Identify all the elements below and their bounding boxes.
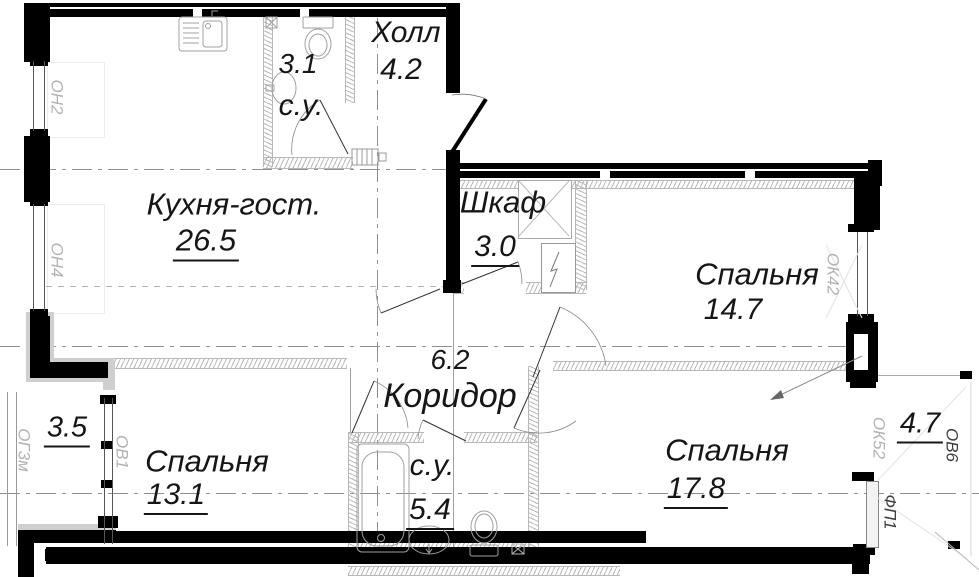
window-mark-on2: ОН2 bbox=[49, 80, 66, 115]
window-mark-ok42: ОК42 bbox=[825, 253, 842, 295]
area-label-bedroom-right: 14.7 bbox=[704, 295, 762, 325]
bathroom-top-door-leaf bbox=[320, 100, 348, 154]
window-mark-og3m: ОГ3м bbox=[16, 428, 33, 472]
entrance-door-leaf bbox=[452, 99, 486, 152]
room-label-corridor: Коридор bbox=[383, 379, 516, 413]
bedroom-left-door-leaf bbox=[352, 381, 374, 433]
bedroom-bottom-right-door-arc bbox=[514, 421, 576, 433]
room-label-hall: Холл bbox=[371, 18, 440, 48]
bedroom-right-door-arc bbox=[560, 307, 606, 366]
room-label-bathroom-bottom: с.у. bbox=[410, 451, 455, 481]
area-label-kitchen: 26.5 bbox=[173, 225, 239, 256]
kitchen-door-arc bbox=[376, 289, 381, 313]
room-label-bedroom-right: Спальня bbox=[695, 259, 819, 290]
bathtub-icon bbox=[357, 444, 409, 552]
room-label-kitchen: Кухня-гост. bbox=[147, 189, 322, 220]
washbasin-bottom-icon bbox=[409, 526, 449, 554]
window-mark-ok52: ОК52 bbox=[871, 417, 888, 459]
room-label-bedroom-left: Спальня bbox=[145, 446, 269, 477]
kitchen-door-leaf bbox=[381, 289, 440, 313]
entrance-door-arc bbox=[452, 94, 486, 99]
floor-plan: Холл 4.2 3.1 с.у. Кухня-гост. 26.5 Шкаф … bbox=[0, 0, 979, 577]
area-label-bedroom-bottom-right: 17.8 bbox=[664, 474, 728, 504]
bathroom-bottom-door-arc bbox=[418, 420, 423, 439]
window-mark-ov6: ОВ6 bbox=[944, 428, 961, 462]
floor-drain-bottom-icon bbox=[512, 544, 524, 554]
bedroom-bottom-right-door-leaf bbox=[514, 370, 540, 428]
window-mark-on4: ОН4 bbox=[49, 243, 66, 278]
direction-arrow bbox=[770, 356, 862, 400]
room-label-bedroom-bottom-right: Спальня bbox=[665, 435, 789, 466]
electrical-bolt-icon bbox=[550, 252, 559, 287]
room-label-closet: Шкаф bbox=[460, 187, 546, 218]
area-label-hall: 4.2 bbox=[380, 55, 422, 85]
radiator-icon bbox=[352, 149, 386, 165]
floor-drain-top-icon bbox=[266, 17, 277, 28]
window-mark-ov1: ОВ1 bbox=[114, 435, 131, 469]
area-label-corridor: 6.2 bbox=[431, 346, 470, 374]
bathroom-bottom-door-leaf bbox=[423, 420, 466, 441]
area-label-balcony-right: 4.7 bbox=[897, 410, 943, 439]
area-label-bathroom-top: 3.1 bbox=[279, 50, 318, 78]
area-label-bedroom-left: 13.1 bbox=[144, 480, 208, 510]
kitchen-sink-icon bbox=[179, 11, 227, 51]
balcony-bottom-edge bbox=[935, 532, 979, 570]
area-label-bathroom-bottom: 5.4 bbox=[406, 495, 454, 525]
window-mark-fp1: ФП1 bbox=[882, 494, 899, 529]
bedroom-right-door-leaf bbox=[533, 307, 560, 377]
area-label-loggia-left: 3.5 bbox=[44, 414, 90, 443]
toilet-bottom-icon bbox=[470, 511, 498, 556]
room-label-bathroom-top: с.у. bbox=[279, 91, 324, 121]
area-label-closet: 3.0 bbox=[471, 232, 519, 262]
